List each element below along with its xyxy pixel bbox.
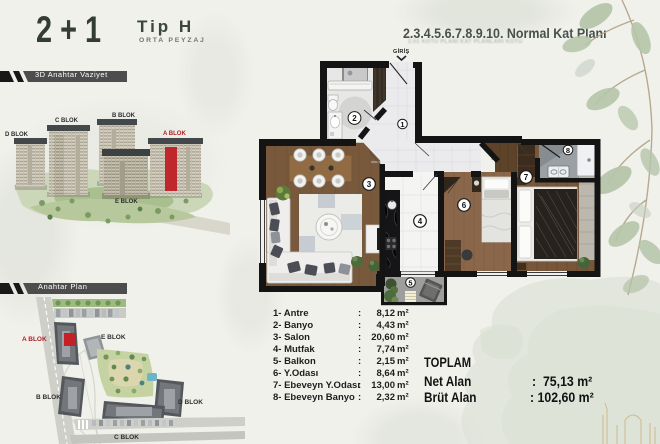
svg-text:A BLOK: A BLOK (163, 131, 186, 137)
svg-text:3: 3 (367, 180, 372, 189)
svg-text:2: 2 (352, 114, 357, 123)
svg-text:B BLOK: B BLOK (112, 113, 136, 119)
svg-text:D BLOK: D BLOK (5, 132, 29, 138)
svg-text:E BLOK: E BLOK (101, 334, 126, 341)
svg-text:6: 6 (462, 201, 467, 210)
svg-text:A BLOK: A BLOK (22, 336, 47, 343)
svg-text:C BLOK: C BLOK (114, 434, 139, 441)
svg-text:C BLOK: C BLOK (55, 118, 79, 124)
svg-text:5: 5 (408, 279, 412, 288)
svg-text:B BLOK: B BLOK (36, 394, 61, 401)
svg-text:7: 7 (524, 173, 529, 182)
svg-text:4: 4 (418, 217, 423, 226)
svg-text:D BLOK: D BLOK (178, 399, 203, 406)
svg-text:E BLOK: E BLOK (115, 199, 138, 205)
svg-text:8: 8 (566, 146, 570, 155)
svg-text:1: 1 (400, 120, 404, 129)
svg-text:GİRİŞ: GİRİŞ (393, 48, 410, 55)
